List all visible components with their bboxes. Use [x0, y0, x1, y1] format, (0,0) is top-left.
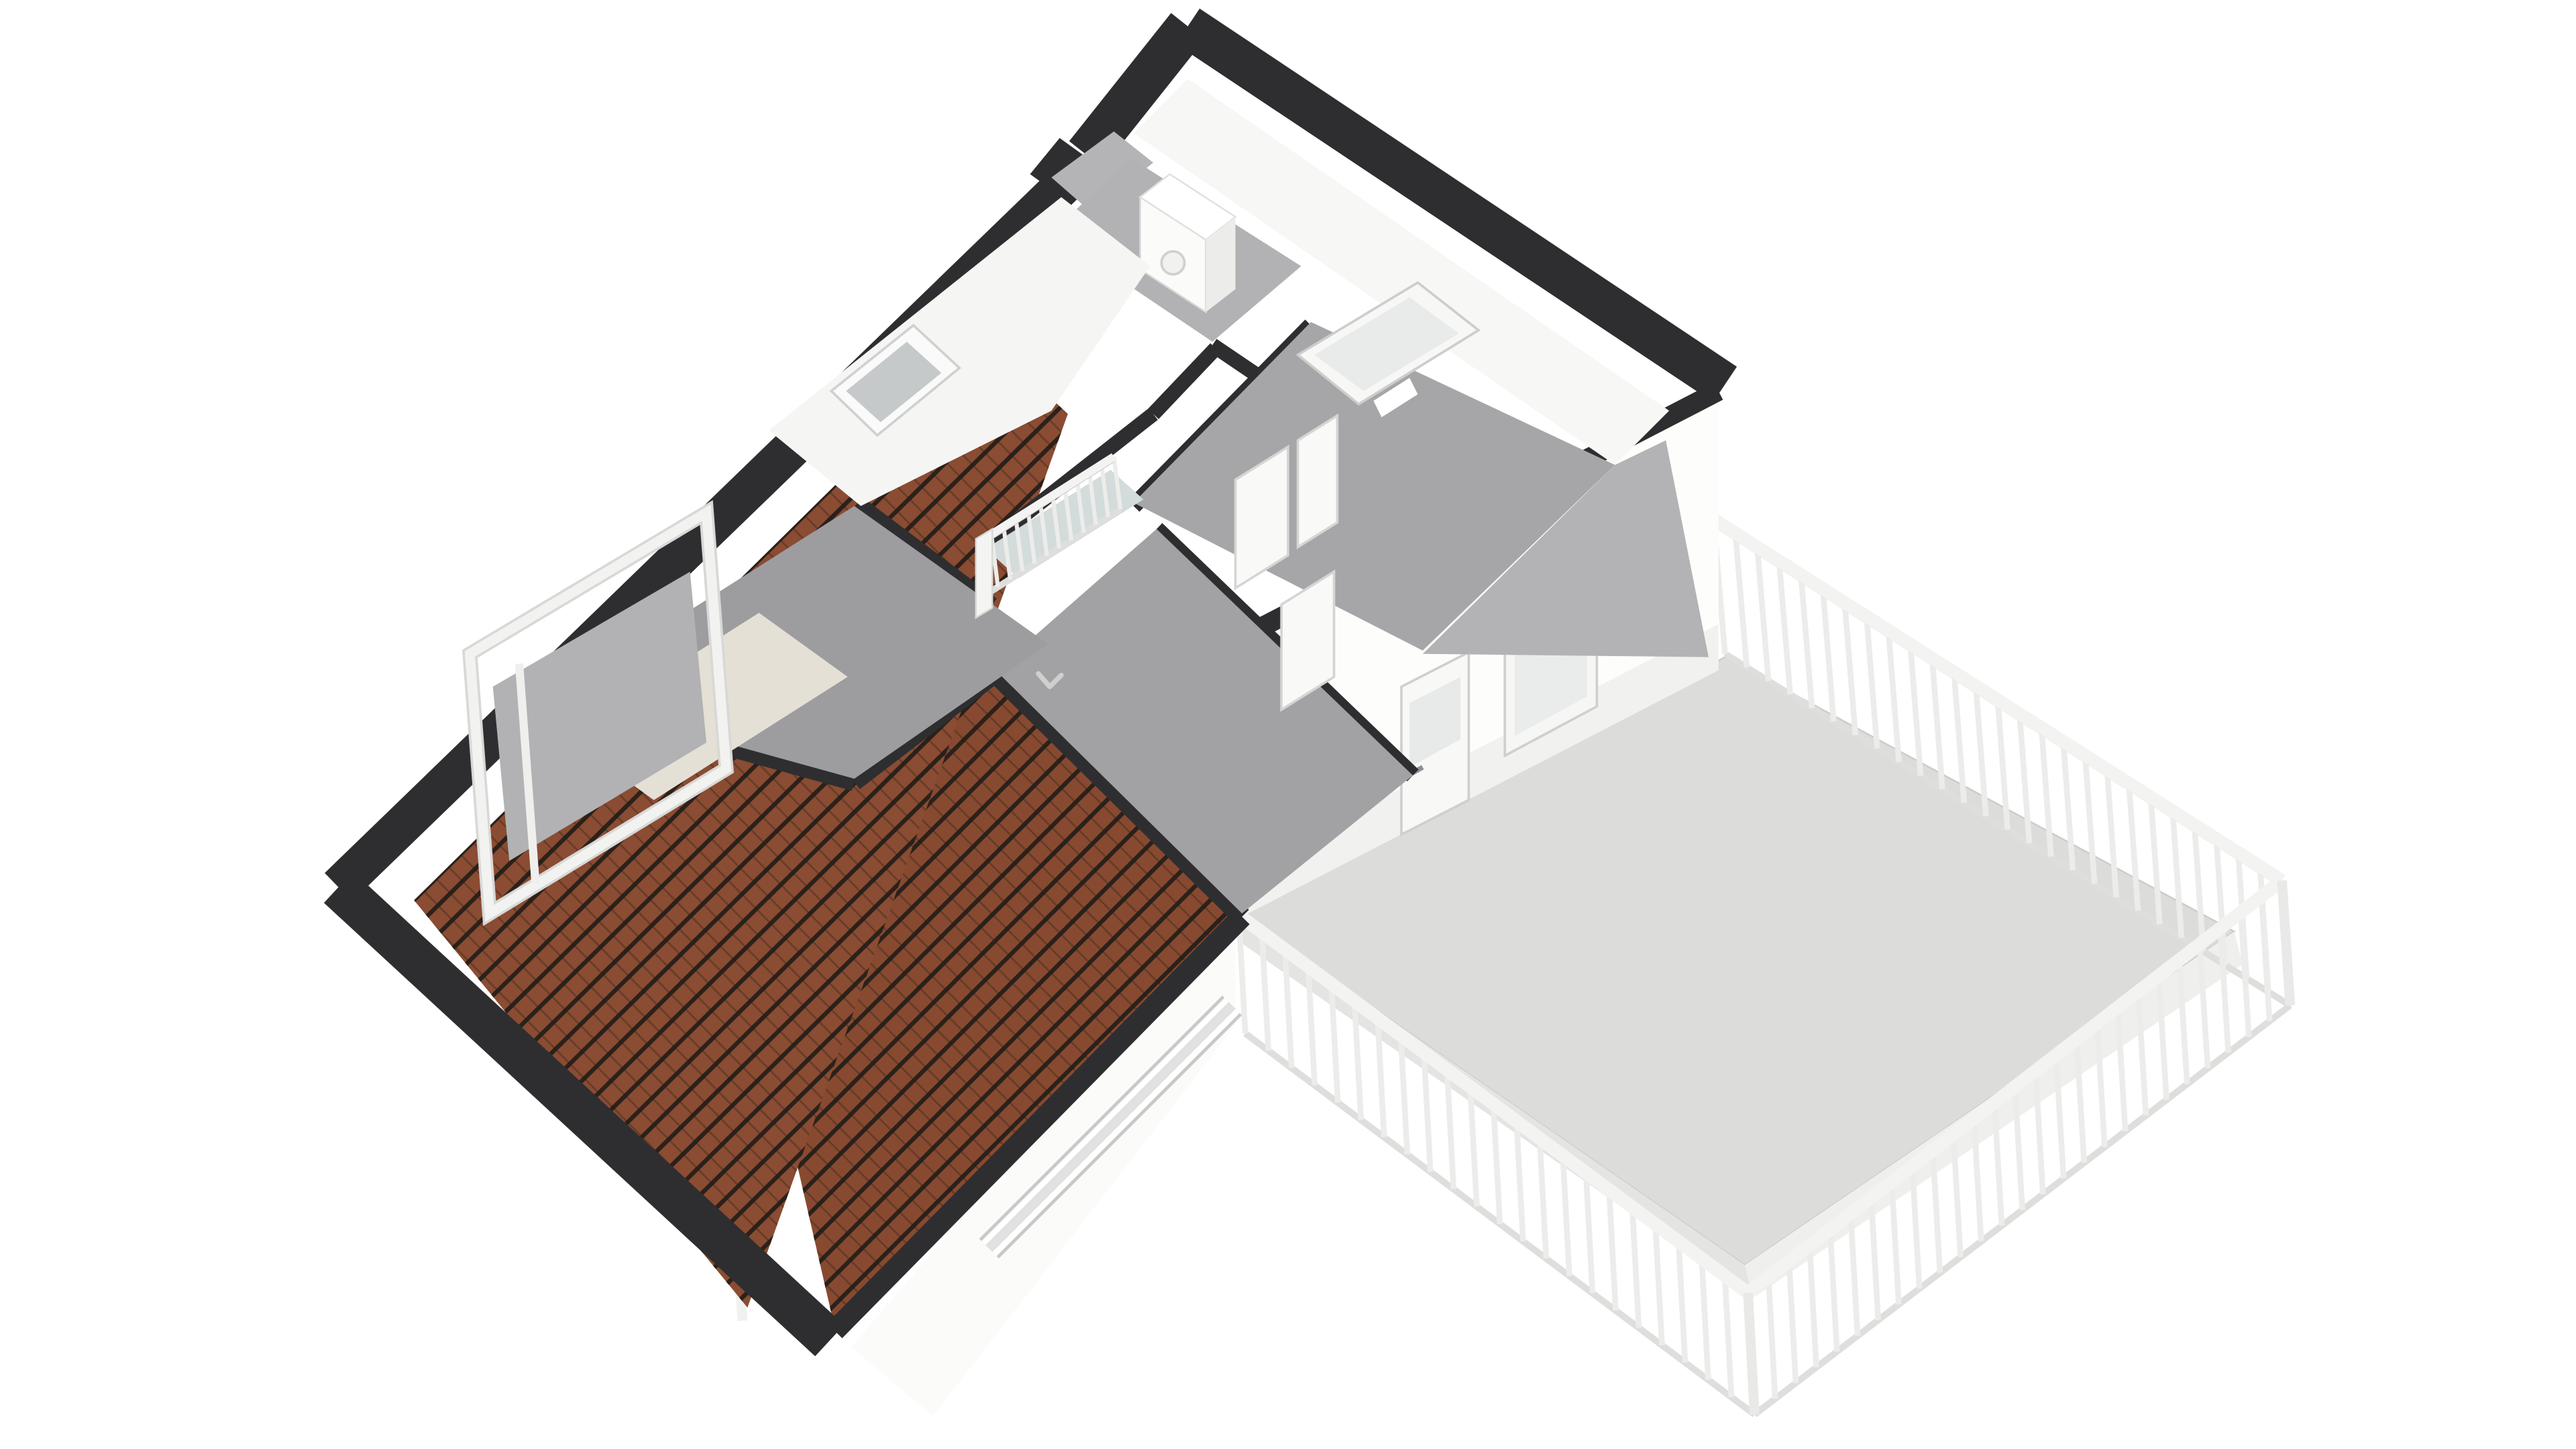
terrace-railing-post-e [2282, 881, 2290, 1006]
floorplan-3d-render [0, 0, 2576, 1449]
stair-newel-post [976, 529, 992, 618]
floorplan-canvas [0, 0, 2576, 1449]
terrace-railing-post-s [1748, 1293, 1755, 1414]
laundry-west-wall-band [1153, 348, 1216, 414]
hall-door-2 [1298, 416, 1338, 547]
washing-machine-door [1161, 252, 1184, 274]
